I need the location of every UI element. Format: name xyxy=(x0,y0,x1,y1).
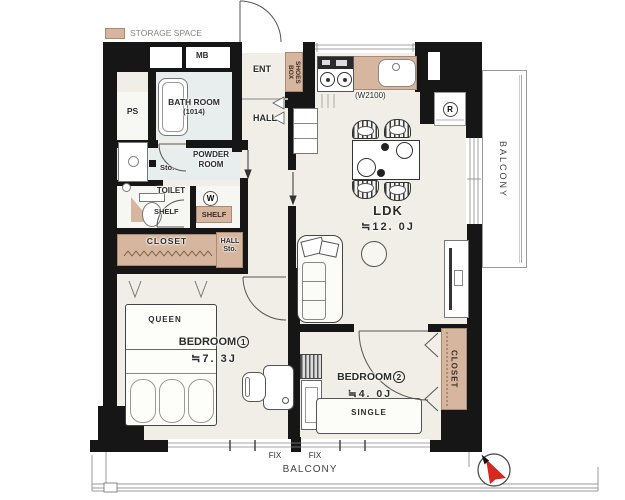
meter-niche xyxy=(150,47,182,68)
floor-plan: STORAGE SPACE SHOES BOX SHELF CLOSET HAL… xyxy=(0,0,625,500)
wall xyxy=(420,92,434,124)
vanity-basin xyxy=(128,156,139,167)
bedroom2-label: BEDROOM2 xyxy=(320,371,422,383)
stove xyxy=(317,56,354,92)
cabinet-shelf-line xyxy=(294,123,317,124)
fridge-mark: R xyxy=(443,102,458,117)
table-dot xyxy=(381,143,389,151)
dining-chair xyxy=(352,120,379,139)
bedroom1-size-label: ≒7. 3J xyxy=(158,352,270,365)
wall xyxy=(288,206,296,268)
ps-label: PS xyxy=(117,106,148,116)
wall xyxy=(240,140,248,150)
compass-icon xyxy=(478,454,510,486)
bedroom1-label: BEDROOM1 xyxy=(158,336,270,348)
dining-chair xyxy=(384,119,411,138)
pipe-slot xyxy=(428,52,440,80)
wall xyxy=(232,42,242,152)
round-table xyxy=(361,241,387,267)
sofa-cushion xyxy=(302,262,326,320)
tv-board xyxy=(444,240,469,318)
balcony-bottom-label: BALCONY xyxy=(250,464,370,475)
wall xyxy=(103,42,117,440)
tv-board-drawer xyxy=(454,270,463,286)
bathroom-label: BATH ROOM (1014) xyxy=(158,98,230,116)
sofa-cushion-line xyxy=(302,300,326,301)
shoes-box-label: SHOES BOX xyxy=(287,53,301,91)
kitchen-window xyxy=(315,42,415,53)
fridge-letter: R xyxy=(447,105,453,114)
bed-blanket-line xyxy=(126,349,216,350)
kitchen-sink xyxy=(378,59,416,87)
shoes-box: SHOES BOX xyxy=(285,52,303,92)
toilet-paper-holder xyxy=(122,183,131,192)
floor-ps xyxy=(117,92,148,140)
wall xyxy=(148,72,156,140)
legend-swatch xyxy=(105,28,125,39)
wall xyxy=(243,228,248,274)
ent-step-line xyxy=(242,98,288,100)
sto-label: Sto. xyxy=(160,163,174,172)
faucet xyxy=(392,63,400,71)
laundry-shelf: SHELF xyxy=(196,206,232,223)
toilet-shelf-label: SHELF xyxy=(154,207,179,216)
hall-closet-label: CLOSET xyxy=(117,236,217,246)
wall xyxy=(300,324,354,332)
washing-machine-mark: W xyxy=(203,191,218,206)
balcony-right-label: BALCONY xyxy=(482,100,524,240)
tv xyxy=(449,248,452,310)
sofa-cushion-line xyxy=(302,281,326,282)
wall xyxy=(285,92,315,108)
queen-label: QUEEN xyxy=(137,315,193,324)
mb-label: MB xyxy=(196,51,208,60)
door-arc-entrance xyxy=(240,1,281,42)
bed-cushion xyxy=(188,379,214,423)
wall xyxy=(467,332,482,452)
vanity xyxy=(118,142,148,182)
wall xyxy=(430,440,482,452)
fix-label-right: FIX xyxy=(300,451,330,460)
wall xyxy=(467,224,482,332)
plate xyxy=(357,158,376,177)
desk-chair xyxy=(242,372,266,402)
counter-width-label: (W2100) xyxy=(355,91,386,100)
sto-marker xyxy=(149,160,156,167)
plate xyxy=(396,142,413,159)
burner-dot xyxy=(326,78,330,82)
washer-letter: W xyxy=(207,194,215,203)
hall-storage-label: HALL Sto. xyxy=(217,238,243,255)
ldk-size-label: ≒12. 0J xyxy=(340,220,436,233)
bed-blanket-line xyxy=(126,373,216,374)
laundry-shelf-label: SHELF xyxy=(202,210,227,219)
wall xyxy=(186,140,232,148)
sofa-pillow xyxy=(319,240,340,257)
bedroom2-closet: CLOSET xyxy=(441,328,467,410)
sofa xyxy=(297,235,343,323)
fix-label-left: FIX xyxy=(260,451,290,460)
cabinet-shelf-line xyxy=(294,138,317,139)
bedroom2-size-label: ≒4. 0J xyxy=(322,388,418,400)
powder-room-label: POWDER ROOM xyxy=(184,150,238,169)
single-label: SINGLE xyxy=(338,408,400,417)
wall xyxy=(415,42,482,92)
bed-cushion xyxy=(130,379,156,423)
ent-label: ENT xyxy=(240,64,284,74)
refrigerator-space: R xyxy=(434,92,466,126)
burner-dot xyxy=(343,78,347,82)
wall xyxy=(291,437,301,452)
ldk-label: LDK xyxy=(352,203,424,218)
desk xyxy=(263,365,294,410)
ldk-window xyxy=(466,138,481,224)
bed-cushion xyxy=(159,379,185,423)
table-dot xyxy=(377,169,385,177)
hall-cabinet xyxy=(293,108,318,154)
bedroom2-headboard xyxy=(300,354,322,379)
desk-dot xyxy=(282,397,289,404)
stove-back xyxy=(318,57,353,69)
bedroom2-closet-label: CLOSET xyxy=(450,350,459,388)
legend-label: STORAGE SPACE xyxy=(130,28,202,38)
wall xyxy=(466,92,482,138)
hall-label: HALL xyxy=(242,113,288,123)
wall xyxy=(240,178,248,232)
chair-back xyxy=(245,377,250,397)
toilet-label: TOILET xyxy=(148,186,194,195)
